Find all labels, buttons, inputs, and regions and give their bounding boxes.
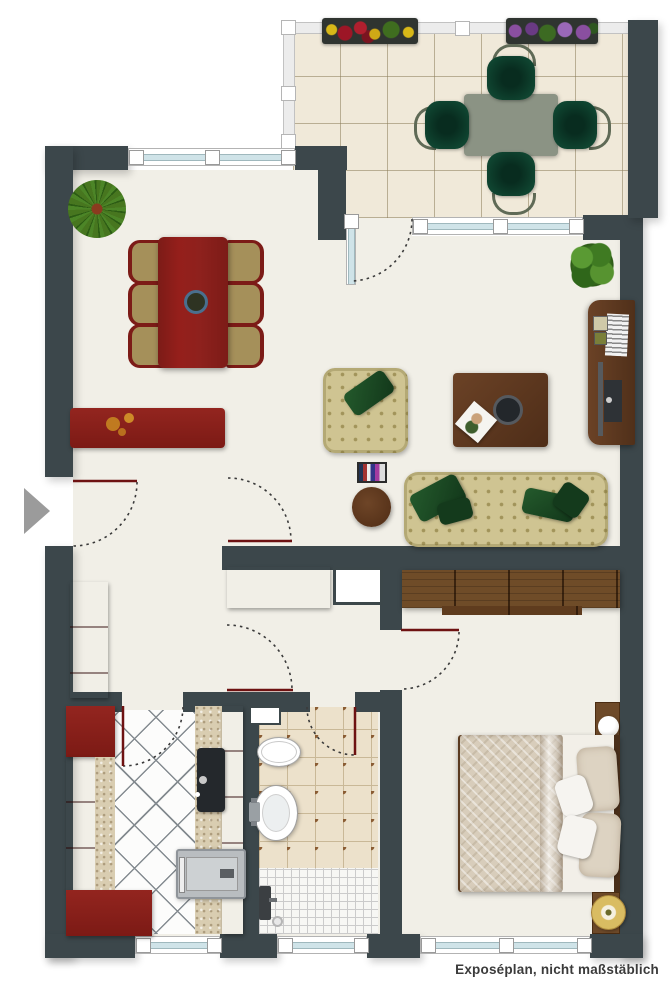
entrance-arrow: [24, 488, 50, 534]
window-handle: [354, 938, 369, 953]
window-handle: [136, 938, 151, 953]
dining-chair: [226, 324, 264, 368]
window-handle: [577, 938, 592, 953]
magazine: [455, 401, 497, 443]
window-handle: [569, 219, 584, 234]
hall-white-cabinet: [333, 567, 383, 605]
round-side-table: [352, 487, 391, 527]
floor-plan: Exposéplan, nicht maßstäblich: [0, 0, 671, 1000]
window-handle: [499, 938, 514, 953]
dining-chair: [226, 282, 264, 326]
table-bowl: [184, 290, 208, 314]
kitchen-counter-left: [95, 757, 115, 890]
railing-post: [281, 86, 296, 101]
kitchen-stove: [176, 849, 246, 899]
window-handle: [207, 938, 222, 953]
window-kitchen: [135, 936, 220, 954]
window-handle: [493, 219, 508, 234]
kitchen-cabinet-top: [66, 706, 115, 757]
bedroom-wardrobe: [402, 570, 620, 608]
washbasin: [254, 785, 298, 841]
balcony-door-threshold: [356, 218, 412, 238]
double-bed: [458, 735, 620, 892]
balcony-chair: [487, 152, 535, 196]
window-bedroom: [420, 936, 590, 954]
potted-plant-tv: [567, 240, 617, 290]
window-handle: [281, 150, 296, 165]
sideboard: [70, 408, 225, 448]
window-handle: [421, 938, 436, 953]
window-handle: [413, 219, 428, 234]
shower-fixture: [259, 886, 271, 920]
tv-unit: [604, 380, 622, 422]
window-bathroom: [277, 936, 367, 954]
bathroom-shelf: [249, 706, 281, 725]
kitchen-counter-right: [195, 706, 222, 934]
flower-box-right: [506, 18, 598, 44]
kitchen-cabinet-left: [66, 757, 95, 890]
window-handle: [129, 150, 144, 165]
flower-box-left: [322, 18, 418, 44]
kitchen-sink: [197, 748, 225, 812]
wall-bedroom-west-upper: [380, 546, 402, 630]
coffee-table: [453, 373, 548, 447]
kitchen-cabinet-bottom: [66, 890, 152, 936]
balcony-chair: [425, 101, 469, 149]
book-stack: [605, 313, 629, 356]
hall-tall-wardrobe: [70, 582, 108, 698]
dining-chair: [226, 240, 264, 284]
hall-wardrobe: [227, 567, 330, 608]
balcony-chair: [553, 101, 597, 149]
railing-post: [281, 134, 296, 149]
plan-caption: Exposéplan, nicht maßstäblich: [455, 962, 659, 977]
toilet: [257, 737, 301, 767]
window-handle: [278, 938, 293, 953]
tv-screen: [598, 362, 603, 436]
window-living-top: [128, 148, 295, 166]
wall-connector: [318, 168, 346, 240]
balcony-railing-left: [283, 22, 295, 148]
window-balcony: [412, 217, 583, 235]
basin-faucet: [249, 802, 260, 822]
potted-plant-living: [68, 180, 126, 238]
railing-post: [281, 20, 296, 35]
wall-bottom: [590, 934, 643, 958]
magazine-rack: [357, 462, 387, 483]
wall-top-right: [295, 146, 347, 170]
wall-bedroom-west-lower: [380, 690, 402, 940]
window-handle: [205, 150, 220, 165]
lamp-gold: [591, 895, 626, 930]
railing-post: [455, 21, 470, 36]
wall-left-upper: [45, 146, 73, 477]
window-handle: [344, 214, 359, 229]
lamp-white: [598, 716, 619, 737]
balcony-wall-right: [628, 20, 658, 218]
shower-drain: [272, 916, 283, 927]
balcony-table: [464, 94, 558, 156]
kitchen-cabinet-right: [222, 706, 243, 934]
balcony-chair: [487, 56, 535, 100]
wall-bottom: [45, 934, 135, 958]
stove-handle: [179, 857, 185, 893]
wall-balcony-sill-right: [583, 215, 623, 240]
tv-board: [588, 300, 635, 445]
